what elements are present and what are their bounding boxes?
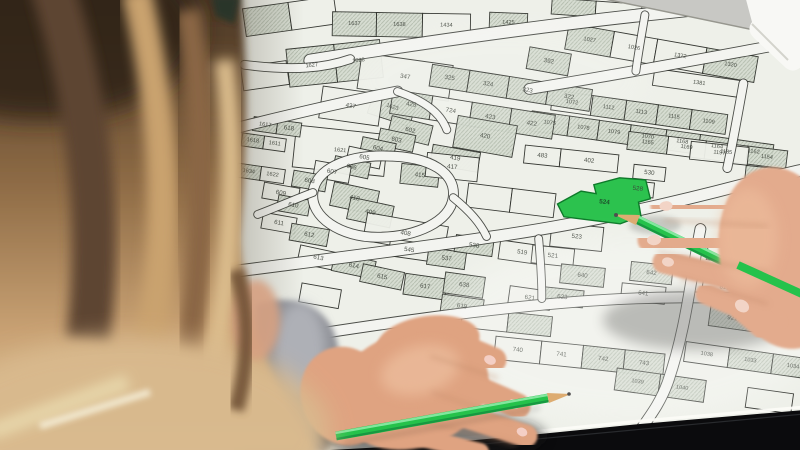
hair-streak-brown (188, 10, 202, 350)
parcel-label: 1637 (348, 21, 361, 27)
parcel-label: 1197 (713, 150, 726, 157)
parcel-label: 402 (584, 157, 596, 165)
parcel-label: 537 (441, 254, 453, 262)
paper-glare-top (350, 25, 650, 135)
parcel-label: 1638 (393, 22, 406, 28)
photo-cadastral-map-scene: 1637163814341425102710261372132039213811… (0, 0, 800, 450)
pencil-graphite-tip (614, 213, 618, 217)
held-pencil-graphite-tip (567, 392, 571, 396)
parcel-label: 1627 (305, 62, 318, 69)
parcel-label: 528 (632, 185, 644, 193)
highlighted-parcel-label: 524 (599, 198, 611, 206)
parcel-label: 530 (644, 169, 656, 177)
parcel-label: 545 (404, 246, 416, 254)
parcel-label: 483 (537, 152, 549, 160)
parcel-label: 523 (571, 233, 583, 241)
parcel-label: 417 (447, 163, 459, 171)
parcel-label: 1434 (440, 23, 453, 29)
parcel-label: 617 (420, 282, 432, 290)
parcel-label: 427 (345, 102, 357, 110)
parcel-label: 415 (414, 171, 426, 179)
scene-photo: 1637163814341425102710261372132039213811… (0, 0, 800, 450)
parcel-label: 538 (468, 241, 480, 249)
